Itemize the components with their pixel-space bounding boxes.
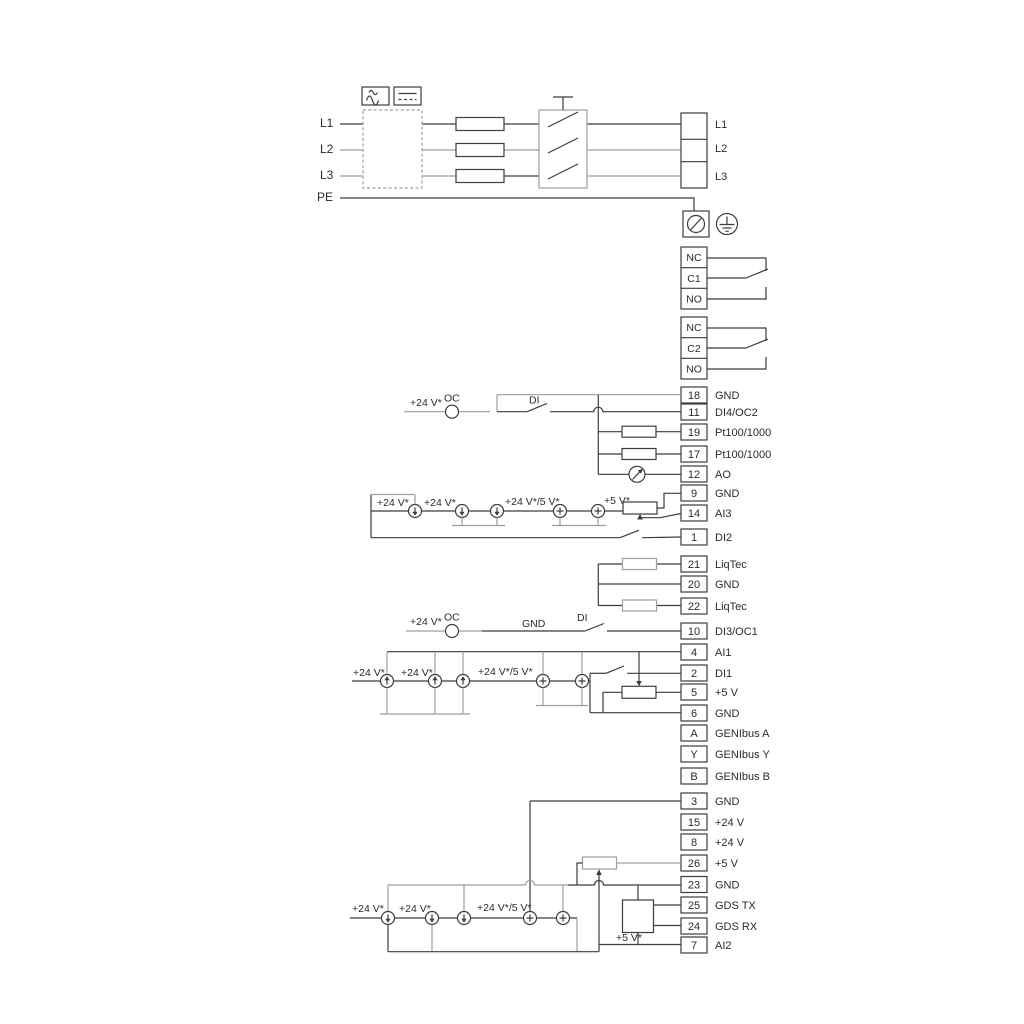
voltage-source-icon [576, 675, 589, 688]
terminal-row: 22 LiqTec [681, 598, 747, 614]
v24-5-label: +24 V*/5 V* [478, 666, 533, 678]
terminal-label: GENIbus A [715, 728, 770, 740]
di4-switch: DI [497, 395, 681, 412]
mains-out-l2-label: L2 [715, 143, 727, 155]
terminal-number: A [690, 728, 698, 740]
terminal-label: LiqTec [715, 559, 747, 571]
terminal-label: +5 V [715, 858, 739, 870]
terminal-row: 11 DI4/OC2 [681, 404, 758, 420]
terminal-label: GENIbus B [715, 771, 770, 783]
terminal-number: 18 [688, 390, 700, 402]
di2-switch [371, 530, 681, 538]
mains-in-l3-label: L3 [320, 168, 334, 182]
terminal-number: B [690, 771, 697, 783]
ac-symbol-box [362, 87, 389, 105]
fuse-l2 [456, 144, 504, 157]
v5-label: +5 V* [616, 932, 642, 944]
current-source-down-icon [409, 505, 422, 518]
terminal-row: 10 DI3/OC1 [681, 623, 758, 639]
terminal-label: GND [715, 708, 740, 720]
voltage-source-icon [554, 505, 567, 518]
terminal-row: 25 GDS TX [681, 897, 756, 913]
oc-label: OC [444, 393, 460, 405]
voltage-source-icon [524, 912, 537, 925]
fuse-l1 [456, 118, 504, 131]
io-strip-2: 10 DI3/OC1 4 AI1 2 DI1 5 +5 V 6 GND A GE… [352, 612, 770, 785]
v24-5-label: +24 V*/5 V* [505, 496, 560, 508]
potentiometer-icon [583, 857, 617, 869]
terminal-number: 9 [691, 488, 697, 500]
mains-in-pe-label: PE [317, 190, 333, 204]
terminal-row: 1 DI2 [681, 529, 732, 545]
terminal-label: +5 V [715, 687, 739, 699]
terminal-label: GDS RX [715, 921, 758, 933]
terminal-label: GND [715, 880, 740, 892]
terminal-row: 7 AI2 [681, 937, 732, 953]
oc2-open-collector: +24 V* OC [404, 393, 490, 419]
pe-screw-terminal-icon [683, 211, 709, 237]
v24-label: +24 V* [410, 616, 442, 628]
terminal-label: Pt100/1000 [715, 427, 771, 439]
di3-switch: GND DI [482, 612, 681, 631]
terminal-number: 24 [688, 921, 700, 933]
current-source-down-icon [426, 912, 439, 925]
gds-sensor-box: +5 V* [616, 885, 681, 945]
analog-output-meter [598, 466, 681, 482]
terminal-label: AI1 [715, 647, 732, 659]
gnd3-wire [530, 801, 681, 912]
terminal-label: DI2 [715, 532, 732, 544]
terminal-number: 11 [688, 407, 699, 419]
relay2-nc-label: NC [686, 322, 702, 334]
resistor-icon [622, 426, 656, 437]
mains-in-l1-label: L1 [320, 116, 334, 130]
current-source-up-icon [381, 675, 394, 688]
dc-symbol-box [394, 87, 421, 105]
v24-label: +24 V* [401, 667, 433, 679]
terminal-row: 3 GND [681, 793, 740, 809]
v24-label: +24 V* [410, 397, 442, 409]
terminal-row: 5 +5 V [681, 684, 739, 700]
terminal-number: 8 [691, 837, 697, 849]
main-switch [539, 97, 587, 188]
terminal-number: 5 [691, 687, 697, 699]
v24-label: +24 V* [377, 497, 409, 509]
relay2-com-label: C2 [687, 343, 701, 355]
gnd18-wire [497, 395, 681, 412]
terminal-number: 3 [691, 796, 697, 808]
terminal-number: 4 [691, 647, 697, 659]
terminal-row: Y GENIbus Y [681, 746, 770, 762]
resistor-icon [623, 600, 657, 611]
terminal-row: 2 DI1 [681, 665, 732, 681]
terminal-label: GND [715, 390, 740, 402]
terminal-row: 4 AI1 [681, 644, 732, 660]
v24-label: +24 V* [352, 903, 384, 915]
earth-ground-icon [717, 214, 738, 235]
terminal-row: 6 GND [681, 705, 740, 721]
terminal-row: 18 GND [681, 387, 740, 403]
relay2-block: NC C2 NO [681, 317, 768, 379]
voltage-source-icon [537, 675, 550, 688]
oc1-open-collector: +24 V* OC [406, 612, 482, 638]
terminal-number: 2 [691, 668, 697, 680]
terminal-row: 21 LiqTec [681, 556, 747, 572]
terminal-number: 10 [688, 626, 700, 638]
terminal-label: DI1 [715, 668, 732, 680]
mains-in-l2-label: L2 [320, 142, 334, 156]
current-source-up-icon [457, 675, 470, 688]
terminal-label: GDS TX [715, 900, 756, 912]
terminal-label: DI3/OC1 [715, 626, 758, 638]
v24-label: +24 V* [353, 667, 385, 679]
current-source-up-icon [429, 675, 442, 688]
terminal-label: GND [715, 796, 740, 808]
terminal-number: 22 [688, 601, 700, 613]
current-source-down-icon [458, 912, 471, 925]
terminal-row: 8 +24 V [681, 834, 745, 850]
terminal-row: 14 AI3 [681, 505, 732, 521]
di-label: DI [577, 612, 588, 624]
terminal-row: 26 +5 V [681, 855, 739, 871]
terminal-label: GND [715, 579, 740, 591]
io-strip-3: 3 GND 15 +24 V 8 +24 V 26 +5 V 23 GND 25… [350, 793, 758, 953]
terminal-row: B GENIbus B [681, 768, 770, 784]
mains-out-block: L1 L2 L3 [681, 113, 727, 188]
potentiometer-icon [623, 502, 657, 514]
pe-wire [340, 198, 694, 211]
terminal-number: 6 [691, 708, 697, 720]
terminal-number: 26 [688, 858, 700, 870]
terminal-row: 20 GND [681, 576, 740, 592]
mains-out-l1-label: L1 [715, 119, 727, 131]
relay1-block: NC C1 NO [681, 247, 768, 309]
v24-5-label: +24 V*/5 V* [477, 902, 532, 914]
relay1-com-label: C1 [687, 273, 701, 285]
mains-section: L1 L2 L3 PE [317, 87, 738, 237]
io-strip-1: 18 GND 11 DI4/OC2 19 Pt100/1000 17 Pt100… [371, 387, 771, 545]
terminal-row: 19 Pt100/1000 [681, 424, 771, 440]
liqtec-wiring [598, 559, 681, 612]
gnd-rail [388, 881, 681, 886]
oc-circle-icon [446, 625, 459, 638]
relay2-no-label: NO [686, 364, 702, 376]
filter-box [363, 110, 422, 188]
terminal-label: Pt100/1000 [715, 449, 771, 461]
wiring-diagram-page: L1 L2 L3 PE [0, 0, 1024, 1024]
mains-out-l3-label: L3 [715, 171, 727, 183]
terminal-label: +24 V [715, 817, 745, 829]
terminal-label: DI4/OC2 [715, 407, 758, 419]
terminal-number: 12 [688, 469, 700, 481]
relay2-contact-icon [707, 328, 768, 369]
terminal-number: 23 [688, 880, 700, 892]
v24-label: +24 V* [424, 497, 456, 509]
terminal-number: Y [690, 749, 698, 761]
resistor-icon [622, 449, 656, 460]
terminal-number: 7 [691, 940, 697, 952]
terminal-number: 15 [688, 817, 700, 829]
di-label: DI [529, 395, 540, 407]
liqtec-strip: 21 LiqTec 20 GND 22 LiqTec [598, 556, 747, 614]
terminal-number: 17 [688, 449, 700, 461]
terminal-label: +24 V [715, 837, 745, 849]
current-source-down-icon [456, 505, 469, 518]
terminal-row: A GENIbus A [681, 725, 770, 741]
current-source-down-icon [382, 912, 395, 925]
ai1-sensor-group: +24 V* +24 V* +24 V*/5 V* [352, 652, 681, 714]
oc-circle-icon [446, 405, 459, 418]
setpoint-potentiometer [590, 686, 681, 712]
gnd-label: GND [522, 618, 546, 630]
terminal-label: GENIbus Y [715, 749, 770, 761]
pt100-branches [598, 395, 681, 475]
relay1-no-label: NO [686, 294, 702, 306]
terminal-row: 9 GND [681, 485, 740, 501]
terminal-number: 21 [688, 559, 700, 571]
wiring-diagram: L1 L2 L3 PE [0, 0, 1024, 1024]
potentiometer-icon [622, 686, 656, 698]
relay1-nc-label: NC [686, 252, 702, 264]
terminal-label: LiqTec [715, 601, 747, 613]
resistor-icon [623, 559, 657, 570]
voltage-source-icon [592, 505, 605, 518]
relay1-contact-icon [707, 258, 768, 299]
terminal-row: 23 GND [681, 877, 740, 893]
terminal-row: 17 Pt100/1000 [681, 446, 771, 462]
current-source-down-icon [491, 505, 504, 518]
terminal-number: 14 [688, 508, 700, 520]
terminal-row: 24 GDS RX [681, 918, 758, 934]
terminal-row: 15 +24 V [681, 814, 745, 830]
terminal-number: 19 [688, 427, 700, 439]
terminal-row: 12 AO [681, 466, 731, 482]
terminal-number: 20 [688, 579, 700, 591]
ai3-sensor-group: +24 V* +24 V* +24 V*/5 V* +5 V* [371, 493, 681, 537]
oc-label: OC [444, 612, 460, 624]
fuse-l3 [456, 170, 504, 183]
terminal-number: 25 [688, 900, 700, 912]
terminal-number: 1 [691, 532, 697, 544]
terminal-label: GND [715, 488, 740, 500]
v24-label: +24 V* [399, 903, 431, 915]
voltage-source-icon [557, 912, 570, 925]
terminal-label: AI3 [715, 508, 732, 520]
terminal-label: AI2 [715, 940, 732, 952]
terminal-label: AO [715, 469, 731, 481]
